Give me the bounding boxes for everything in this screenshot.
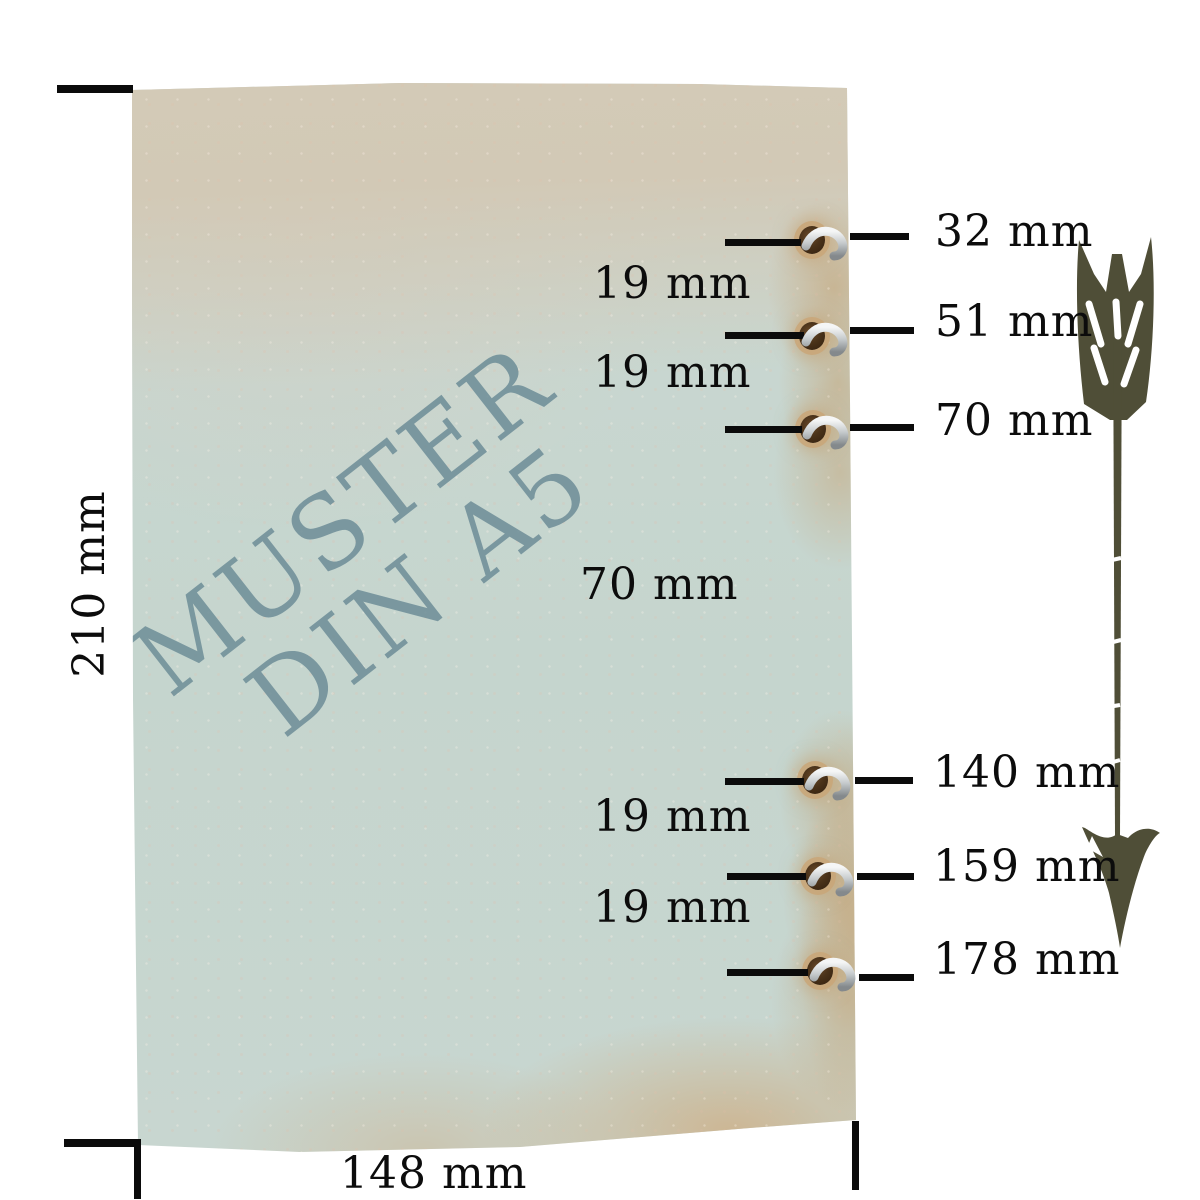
measure-line-right-4 [855, 777, 913, 784]
measure-line-left-6 [727, 969, 808, 976]
hole-spacing-label-5: 19 mm [593, 886, 751, 930]
measure-line-right-1 [850, 233, 909, 240]
hole-distance-label-4: 140 mm [933, 751, 1120, 795]
hole-spacing-label-1: 19 mm [593, 262, 751, 306]
punch-hole-6 [807, 957, 833, 985]
hole-spacing-label-4: 19 mm [593, 795, 751, 839]
measure-line-left-5 [727, 873, 806, 880]
measure-line-right-6 [859, 974, 914, 981]
dimension-tick-bottom-left-h [64, 1139, 141, 1147]
measure-line-right-2 [850, 327, 914, 334]
punch-hole-4 [802, 766, 828, 794]
punch-hole-1 [799, 226, 825, 254]
page-height-label: 210 mm [68, 474, 112, 694]
measure-line-left-2 [725, 332, 804, 339]
hole-spacing-label-3: 70 mm [580, 563, 738, 607]
hole-distance-label-2: 51 mm [935, 300, 1093, 344]
dimension-tick-top-left [57, 85, 133, 93]
measure-line-left-4 [725, 778, 804, 785]
punch-hole-3 [800, 415, 826, 443]
hole-distance-label-3: 70 mm [935, 399, 1093, 443]
page-width-label: 148 mm [340, 1152, 527, 1196]
punch-hole-5 [805, 862, 831, 890]
measure-line-right-5 [857, 873, 914, 880]
measure-line-left-3 [725, 426, 802, 433]
hole-distance-label-6: 178 mm [933, 938, 1120, 982]
dimension-tick-bottom-right-v [852, 1121, 859, 1190]
measure-line-right-3 [850, 424, 914, 431]
dimension-tick-bottom-left-v [134, 1139, 141, 1199]
hole-distance-label-5: 159 mm [933, 845, 1120, 889]
hole-spacing-label-2: 19 mm [593, 351, 751, 395]
hole-distance-label-1: 32 mm [935, 210, 1093, 254]
measure-line-left-1 [725, 239, 801, 246]
diagram-canvas: MUSTER DIN A5 [0, 0, 1200, 1200]
